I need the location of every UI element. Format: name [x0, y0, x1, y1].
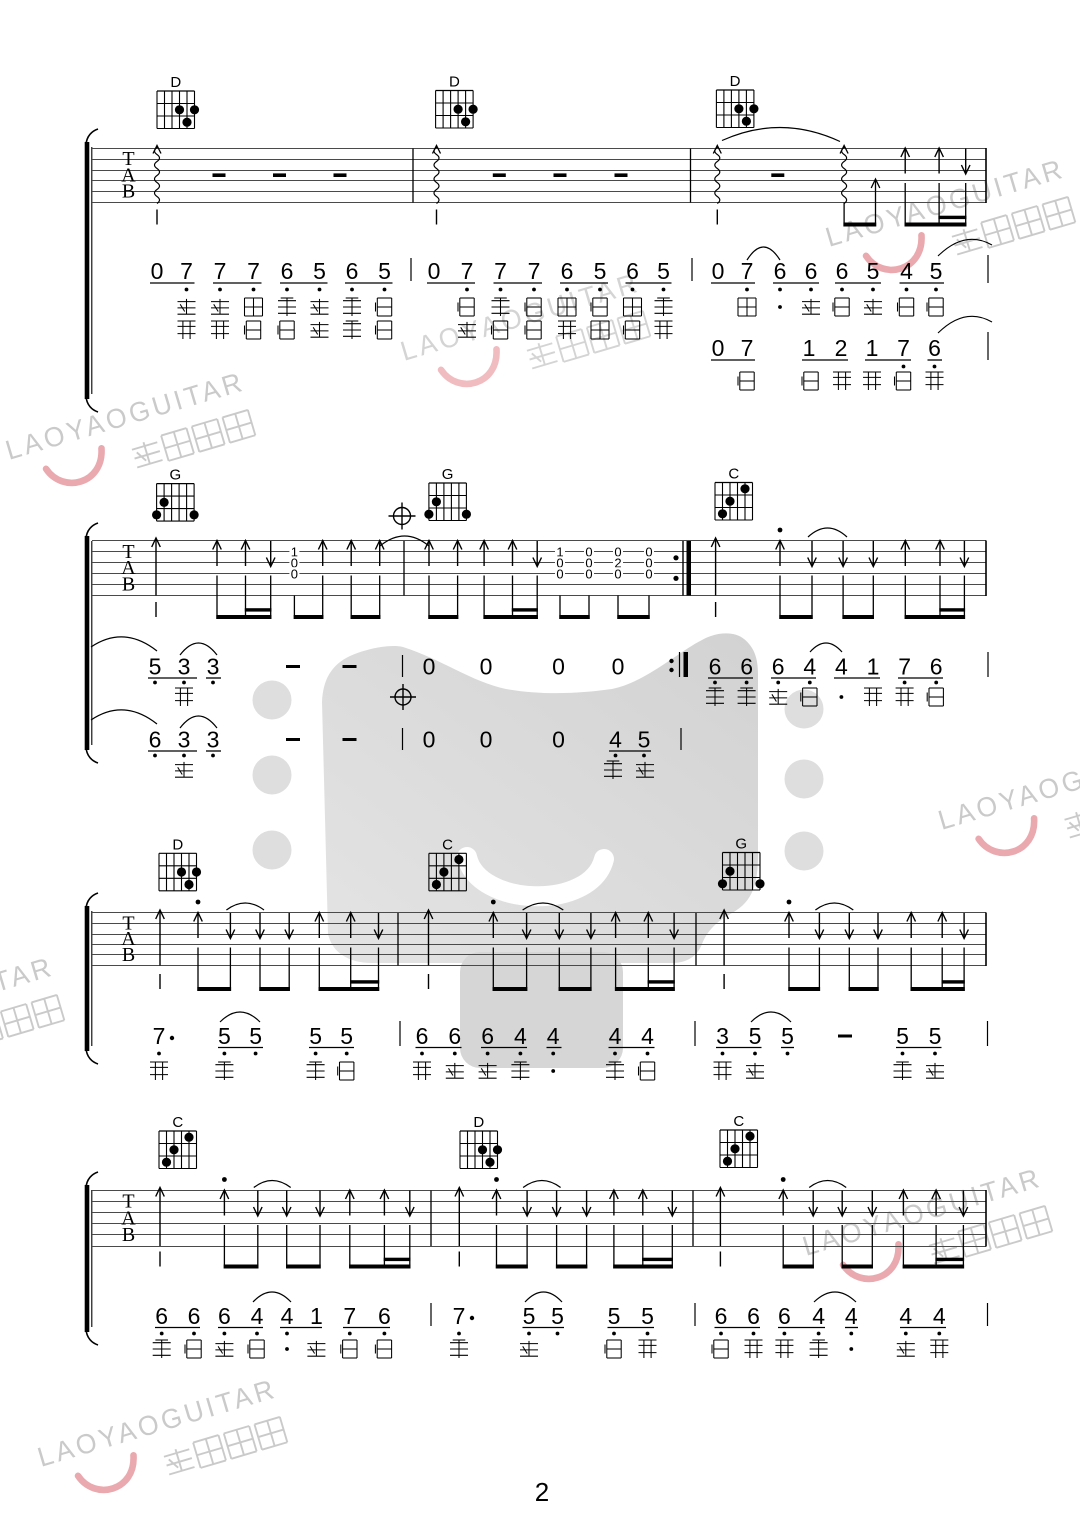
svg-text:7: 7 [898, 654, 911, 680]
svg-text:0: 0 [480, 727, 493, 753]
svg-text:4: 4 [641, 1023, 654, 1049]
svg-text:0: 0 [612, 654, 625, 680]
svg-text:6: 6 [416, 1023, 429, 1049]
svg-text:4: 4 [845, 1303, 858, 1329]
svg-text:1: 1 [803, 335, 816, 361]
svg-text:6: 6 [448, 1023, 461, 1049]
svg-text:5: 5 [749, 1023, 762, 1049]
svg-text:5: 5 [149, 654, 162, 680]
svg-text:7: 7 [461, 258, 474, 284]
svg-text:G: G [442, 466, 454, 483]
svg-text:5: 5 [313, 258, 326, 284]
svg-text:5: 5 [340, 1023, 353, 1049]
svg-text:G: G [169, 467, 181, 484]
svg-text:5: 5 [638, 727, 651, 753]
svg-text:4: 4 [812, 1303, 825, 1329]
svg-text:6: 6 [346, 258, 359, 284]
svg-text:5: 5 [896, 1023, 909, 1049]
svg-text:6: 6 [805, 258, 818, 284]
svg-text:5: 5 [641, 1303, 654, 1329]
svg-text:4: 4 [547, 1023, 560, 1049]
svg-text:4: 4 [835, 654, 848, 680]
svg-text:0: 0 [556, 566, 563, 581]
svg-text:6: 6 [626, 258, 639, 284]
svg-text:B: B [122, 574, 135, 596]
svg-text:6: 6 [836, 258, 849, 284]
svg-text:7: 7 [897, 335, 910, 361]
svg-text:3: 3 [178, 654, 191, 680]
svg-text:5: 5 [781, 1023, 794, 1049]
svg-text:4: 4 [609, 727, 622, 753]
svg-text:0: 0 [552, 654, 565, 680]
svg-text:6: 6 [188, 1303, 201, 1329]
svg-text:C: C [728, 466, 739, 483]
svg-text:1: 1 [866, 335, 879, 361]
svg-text:2: 2 [535, 1477, 549, 1507]
svg-text:4: 4 [803, 654, 816, 680]
svg-text:7: 7 [247, 258, 260, 284]
svg-text:6: 6 [561, 258, 574, 284]
svg-text:D: D [473, 1114, 484, 1131]
svg-text:5: 5 [523, 1303, 536, 1329]
svg-text:6: 6 [715, 1303, 728, 1329]
svg-text:6: 6 [281, 258, 294, 284]
svg-text:C: C [442, 836, 453, 853]
svg-text:7: 7 [741, 335, 754, 361]
svg-text:0: 0 [645, 566, 652, 581]
svg-text:0: 0 [712, 258, 725, 284]
svg-text:6: 6 [155, 1303, 168, 1329]
svg-text:0: 0 [614, 566, 621, 581]
svg-text:6: 6 [481, 1023, 494, 1049]
svg-text:5: 5 [594, 258, 607, 284]
svg-text:C: C [172, 1114, 183, 1131]
svg-text:2: 2 [835, 335, 848, 361]
svg-text:6: 6 [930, 654, 943, 680]
svg-text:7: 7 [343, 1303, 356, 1329]
svg-text:7: 7 [494, 258, 507, 284]
svg-text:5: 5 [309, 1023, 322, 1049]
svg-text:6: 6 [218, 1303, 231, 1329]
svg-text:4: 4 [899, 1303, 912, 1329]
svg-text:4: 4 [933, 1303, 946, 1329]
svg-text:0: 0 [552, 727, 565, 753]
svg-text:6: 6 [149, 727, 162, 753]
svg-text:4: 4 [514, 1023, 527, 1049]
svg-text:1: 1 [310, 1303, 323, 1329]
svg-text:7: 7 [453, 1303, 466, 1329]
svg-text:4: 4 [609, 1023, 622, 1049]
svg-text:4: 4 [281, 1303, 294, 1329]
svg-text:0: 0 [428, 258, 441, 284]
svg-text:5: 5 [551, 1303, 564, 1329]
svg-text:7: 7 [153, 1023, 166, 1049]
svg-text:7: 7 [214, 258, 227, 284]
svg-text:6: 6 [709, 654, 722, 680]
svg-text:B: B [122, 944, 135, 966]
svg-text:0: 0 [585, 566, 592, 581]
svg-text:0: 0 [151, 258, 164, 284]
svg-text:6: 6 [772, 654, 785, 680]
svg-text:3: 3 [716, 1023, 729, 1049]
svg-text:D: D [449, 74, 460, 91]
svg-text:3: 3 [207, 654, 220, 680]
svg-text:6: 6 [747, 1303, 760, 1329]
svg-text:5: 5 [930, 258, 943, 284]
svg-text:6: 6 [778, 1303, 791, 1329]
svg-text:5: 5 [249, 1023, 262, 1049]
svg-text:6: 6 [928, 335, 941, 361]
svg-text:C: C [733, 1113, 744, 1130]
svg-text:5: 5 [608, 1303, 621, 1329]
svg-text:0: 0 [712, 335, 725, 361]
svg-text:5: 5 [867, 258, 880, 284]
svg-text:B: B [122, 181, 135, 203]
svg-text:D: D [170, 74, 181, 91]
svg-text:7: 7 [741, 258, 754, 284]
svg-text:3: 3 [178, 727, 191, 753]
svg-text:B: B [122, 1224, 135, 1246]
svg-text:5: 5 [378, 258, 391, 284]
svg-text:7: 7 [180, 258, 193, 284]
svg-text:7: 7 [528, 258, 541, 284]
svg-text:0: 0 [423, 654, 436, 680]
svg-text:D: D [730, 73, 741, 90]
svg-text:4: 4 [900, 258, 913, 284]
svg-text:D: D [172, 836, 183, 853]
svg-text:4: 4 [251, 1303, 264, 1329]
svg-text:5: 5 [218, 1023, 231, 1049]
svg-text:5: 5 [657, 258, 670, 284]
svg-text:6: 6 [378, 1303, 391, 1329]
svg-text:G: G [735, 836, 747, 853]
svg-text:1: 1 [867, 654, 880, 680]
svg-text:0: 0 [480, 654, 493, 680]
svg-text:0: 0 [291, 566, 298, 581]
svg-text:5: 5 [929, 1023, 942, 1049]
svg-text:3: 3 [207, 727, 220, 753]
svg-text:6: 6 [740, 654, 753, 680]
svg-text:0: 0 [423, 727, 436, 753]
svg-text:6: 6 [774, 258, 787, 284]
